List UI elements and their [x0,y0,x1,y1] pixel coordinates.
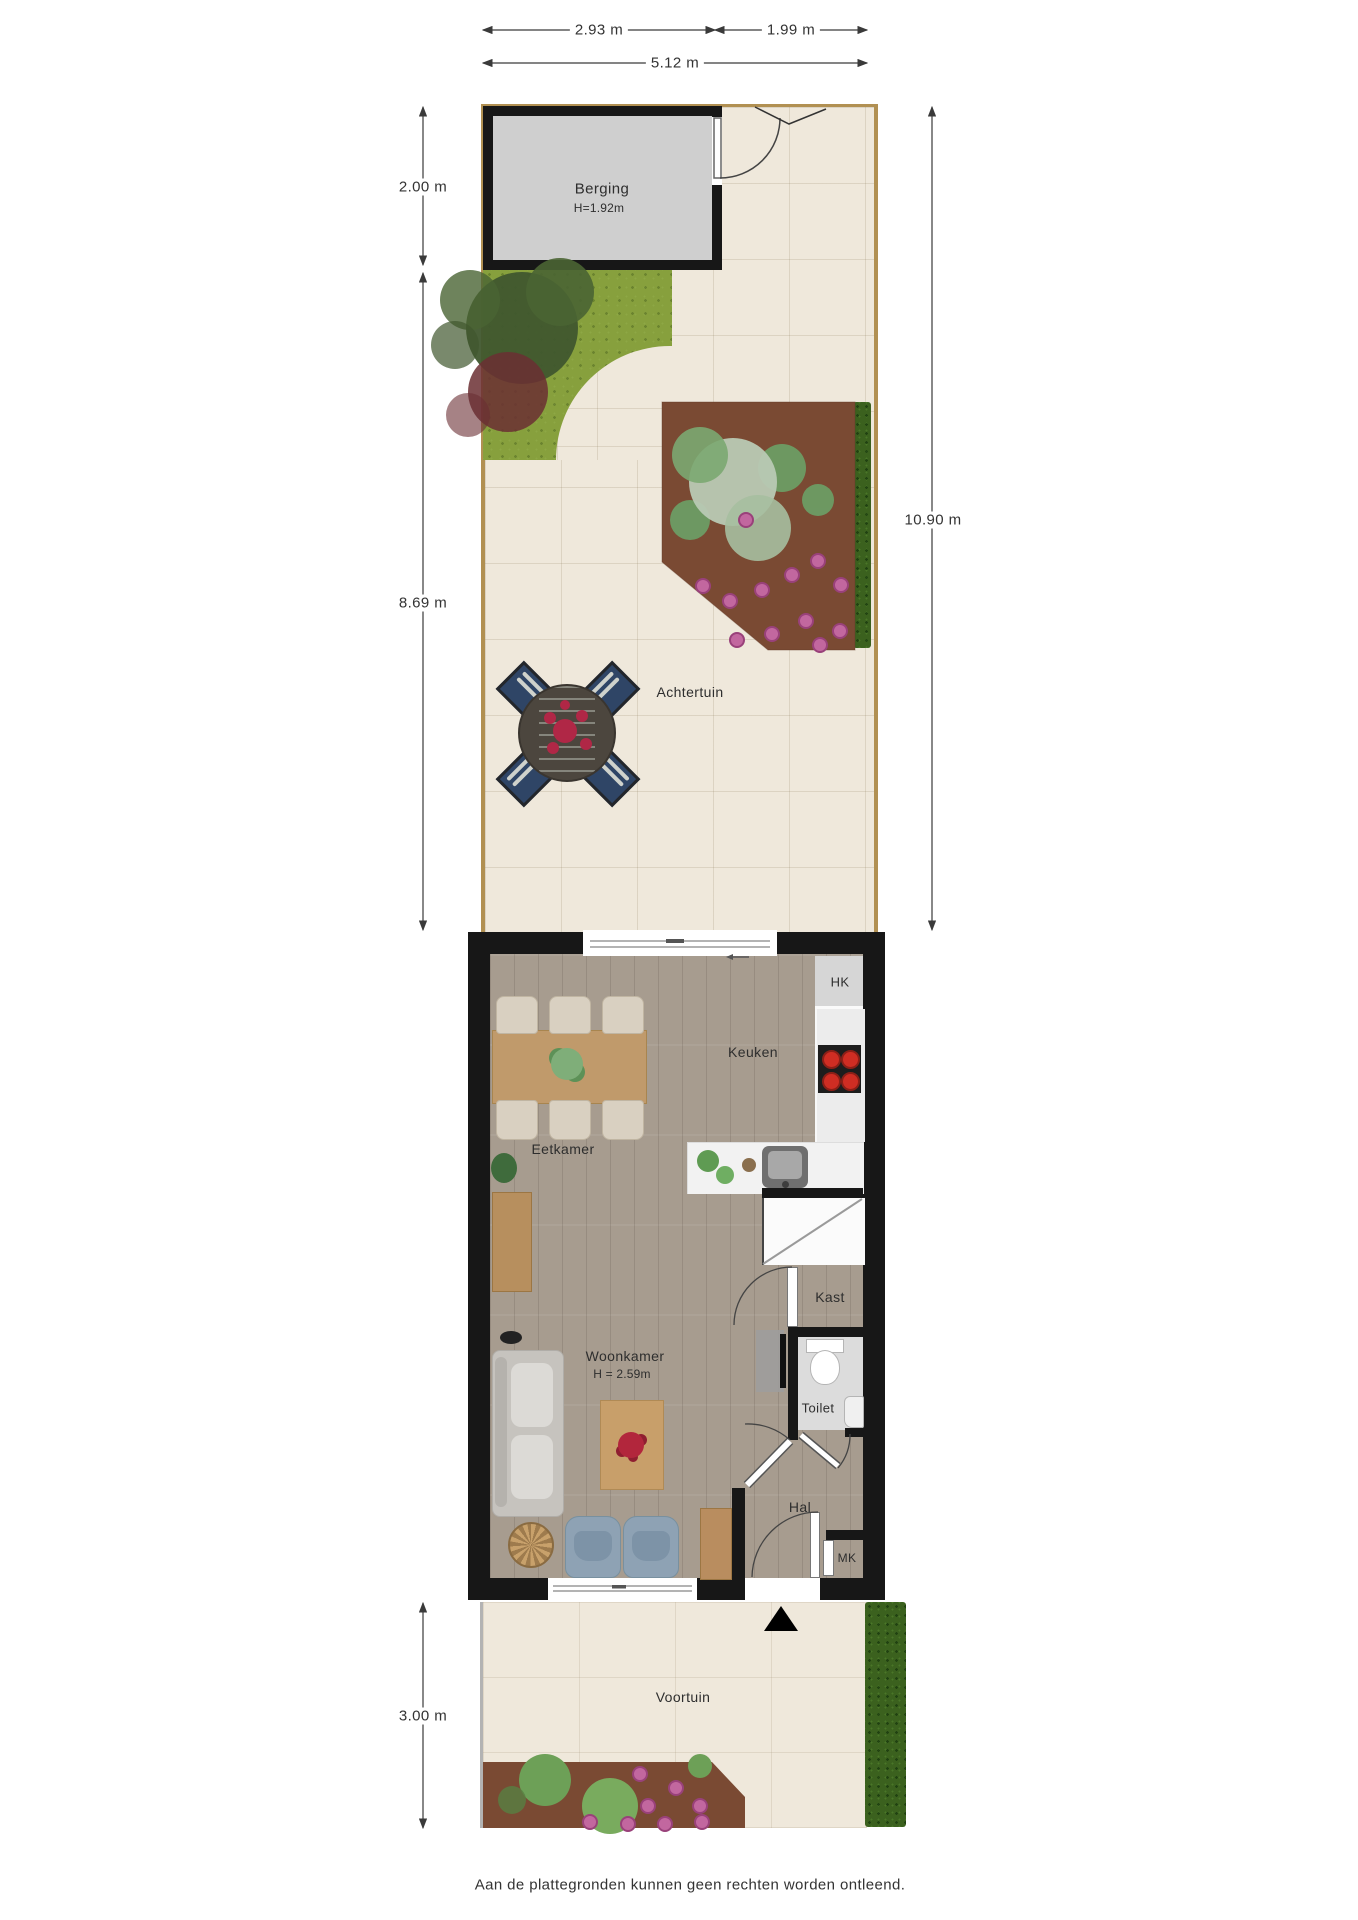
hal-door [745,1424,790,1485]
label-woonkamer-height: H = 2.59m [593,1367,651,1381]
toilet-door [801,1434,850,1468]
label-keuken: Keuken [728,1044,778,1060]
front-door-swing [752,1512,818,1577]
front-planting-bed [483,1754,745,1834]
label-mk: MK [838,1551,857,1565]
shed-door [714,118,780,178]
label-hk: HK [831,975,850,990]
dim-top-right: 1.99 m [762,22,820,39]
label-achtertuin: Achtertuin [656,684,723,700]
label-hal: Hal [789,1499,811,1515]
label-woonkamer: Woonkamer [586,1348,665,1364]
garden-tree [431,258,594,437]
floorplan-page: 2.93 m 1.99 m 5.12 m 2.00 m 8.69 m 10.90… [0,0,1358,1920]
label-toilet: Toilet [802,1401,835,1416]
north-arrow-icon [764,1606,798,1631]
dim-left-berging: 2.00 m [394,179,452,196]
garden-gate [755,107,826,124]
garden-table-flowers [544,700,592,754]
label-berging-height: H=1.92m [574,201,624,215]
overlay-graphics [0,0,1358,1920]
sliding-door-glazing [590,939,770,960]
dim-top-left: 2.93 m [570,22,628,39]
label-kast: Kast [815,1289,845,1305]
kast-door-swing [734,1267,792,1325]
front-window-glazing [553,1585,692,1591]
label-berging: Berging [575,181,630,198]
dim-right-total: 10.90 m [900,512,967,529]
back-planting-bed [662,402,855,652]
stairs-diagonal [763,1199,862,1264]
label-voortuin: Voortuin [656,1689,711,1705]
dim-top-total: 5.12 m [646,55,704,72]
dim-left-voortuin: 3.00 m [394,1708,452,1725]
label-eetkamer: Eetkamer [531,1141,594,1157]
disclaimer-text: Aan de plattegronden kunnen geen rechten… [475,1877,906,1894]
dim-left-garden: 8.69 m [394,595,452,612]
